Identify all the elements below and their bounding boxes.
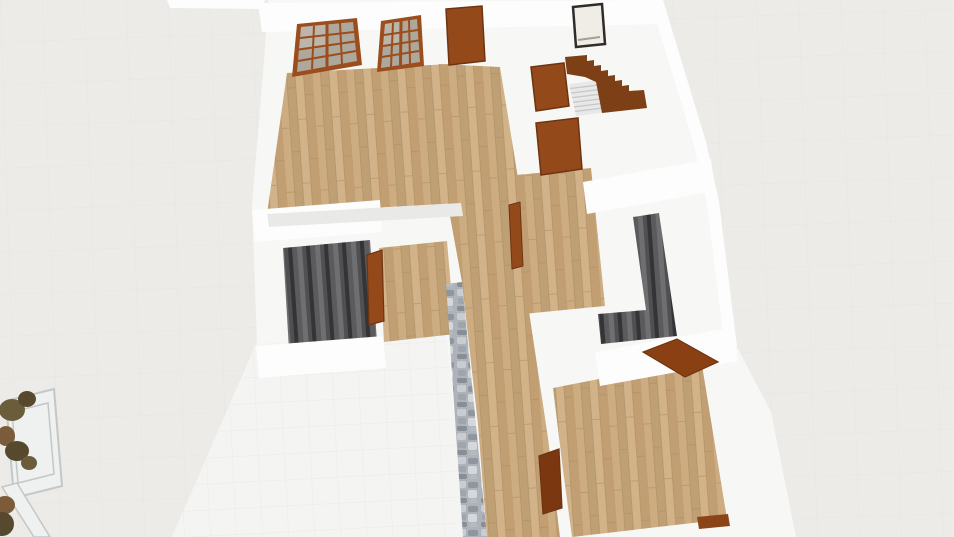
entry-door-top[interactable] (446, 6, 485, 65)
hallway-tab-floor (429, 95, 442, 114)
hallway-alcove-floor[interactable] (379, 241, 455, 342)
wall-sliver-top (167, 0, 265, 9)
door-hall-narrow[interactable] (509, 202, 523, 269)
bottom-room-floor[interactable] (553, 359, 727, 537)
scene-canvas[interactable] (0, 0, 954, 537)
floorplan-3d-viewport[interactable] (0, 0, 954, 537)
door-middle-room[interactable] (536, 118, 582, 175)
door-stair-hall[interactable] (531, 63, 569, 111)
door-alcove[interactable] (367, 250, 384, 325)
stairwell-left[interactable] (283, 240, 377, 350)
french-door-2[interactable] (377, 15, 424, 72)
lounge-room-floor[interactable] (267, 64, 461, 214)
wall-art[interactable] (573, 4, 605, 47)
door-hall-bottom[interactable] (539, 449, 562, 514)
